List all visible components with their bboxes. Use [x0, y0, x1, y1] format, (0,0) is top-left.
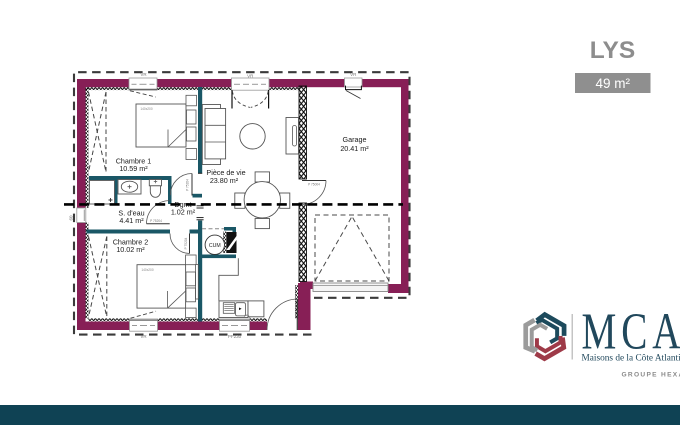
svg-text:GROUPE HEXAÔM: GROUPE HEXAÔM — [622, 370, 680, 379]
svg-text:CUM: CUM — [209, 243, 221, 249]
svg-text:10.02 m²: 10.02 m² — [116, 245, 145, 254]
svg-text:140x200: 140x200 — [141, 268, 153, 272]
svg-text:Garage: Garage — [343, 135, 367, 144]
svg-text:10.59 m²: 10.59 m² — [119, 164, 148, 173]
svg-text:P 75204: P 75204 — [185, 179, 189, 191]
svg-text:60: 60 — [69, 215, 74, 221]
svg-text:LYS: LYS — [590, 37, 635, 64]
svg-text:4.41 m²: 4.41 m² — [119, 216, 144, 225]
svg-text:VR: VR — [350, 72, 357, 77]
svg-text:VR: VR — [247, 74, 254, 79]
svg-text:20.41 m²: 20.41 m² — [340, 144, 369, 153]
svg-text:PF230: PF230 — [228, 334, 242, 339]
svg-text:23.80 m²: 23.80 m² — [210, 176, 239, 185]
svg-text:VR: VR — [140, 334, 147, 339]
svg-text:1.02 m²: 1.02 m² — [171, 208, 196, 217]
svg-text:P 75004: P 75004 — [308, 183, 320, 187]
svg-text:Maisons de la Côte Atlantique: Maisons de la Côte Atlantique — [582, 354, 680, 364]
svg-text:VR: VR — [140, 72, 147, 77]
svg-text:140x200: 140x200 — [140, 107, 152, 111]
svg-text:MCA: MCA — [582, 302, 680, 359]
svg-text:49 m²: 49 m² — [595, 76, 630, 91]
svg-text:P 75204: P 75204 — [150, 219, 162, 223]
svg-text:P 75204: P 75204 — [184, 237, 188, 249]
